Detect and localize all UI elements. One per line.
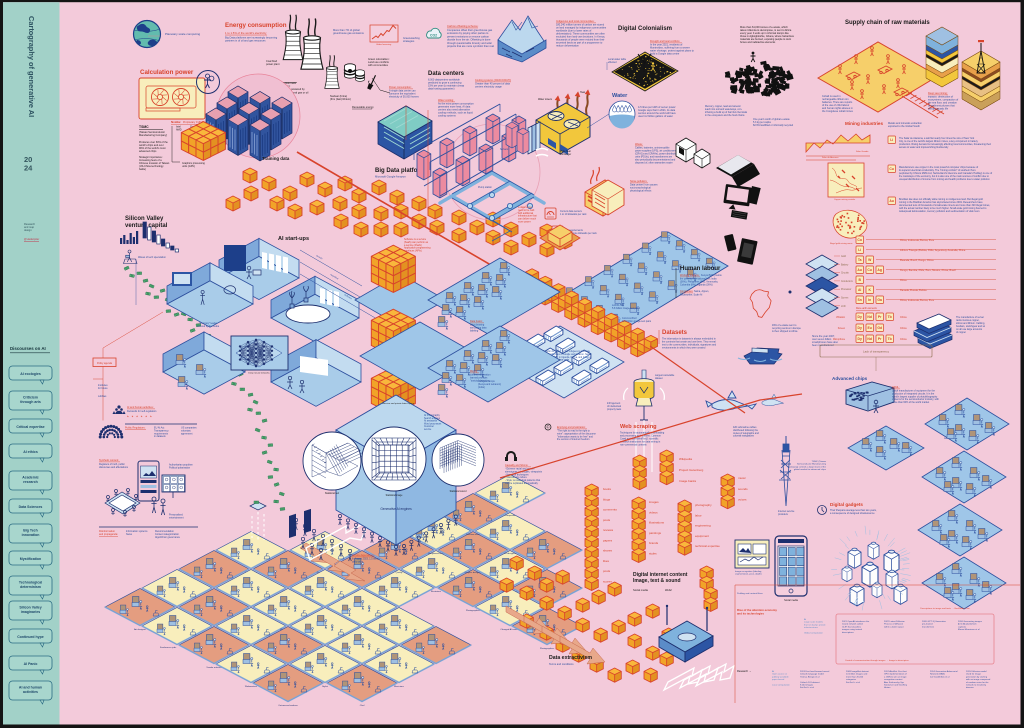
svg-text:Screen: Screen (841, 297, 849, 300)
svg-text:Silicon Valley: Silicon Valley (19, 606, 41, 610)
svg-text:Cartography of generative AI: Cartography of generative AI (27, 16, 36, 117)
svg-text:2021 OpenAI introduces the: 2021 OpenAI introduces the (842, 620, 870, 623)
svg-text:providers: providers (778, 513, 789, 516)
svg-text:Fei-Fei Li et al: Fei-Fei Li et al (800, 686, 814, 689)
svg-text:Co: Co (857, 238, 862, 242)
svg-text:AI Panic: AI Panic (24, 662, 38, 666)
svg-text:access to water and impoverish: access to water and impoverishing biodiv… (899, 146, 949, 149)
svg-text:[bl in AI planti] from: [bl in AI planti] from (958, 623, 977, 626)
svg-text:Calculation power: Calculation power (140, 69, 194, 76)
svg-text:videos: videos (649, 510, 658, 514)
svg-text:environments in which they wer: environments in which they were created (662, 347, 706, 350)
svg-text:posts: posts (603, 518, 611, 522)
svg-text:transformer): transformer) (922, 625, 934, 628)
svg-text:Profiling and content filters: Profiling and content filters (737, 592, 764, 595)
svg-text:Colombia (8%), Uganda (36%): Colombia (8%), Uganda (36%) (680, 284, 713, 287)
svg-text:Illustrators: Illustrators (431, 590, 442, 593)
svg-text:papers: papers (603, 538, 613, 542)
svg-text:China: China (900, 316, 907, 319)
svg-text:Nd: Nd (867, 315, 872, 319)
svg-text:electricity of 50,000 homes: electricity of 50,000 homes (389, 96, 419, 99)
svg-text:Sn: Sn (858, 298, 862, 302)
svg-text:Water: Water (612, 93, 628, 99)
svg-text:descriptions: descriptions (842, 631, 855, 634)
svg-text:Servers: Servers (500, 148, 509, 151)
svg-text:greenhouse gas emissions: greenhouse gas emissions (333, 31, 365, 35)
svg-text:China: China (900, 279, 907, 282)
svg-text:Web2: Web2 (665, 588, 672, 592)
svg-text:a CNN to win an image: a CNN to win an image (884, 675, 907, 678)
svg-text:innovation: innovation (22, 533, 40, 537)
svg-text:Water towers: Water towers (538, 98, 553, 101)
svg-text:Manufacturing Company): Manufacturing Company) (139, 134, 167, 137)
svg-text:Salar Grande: Salar Grande (856, 150, 869, 153)
svg-text:Data Sciences: Data Sciences (19, 505, 43, 509)
svg-text:units (GPU): units (GPU) (182, 165, 195, 168)
svg-text:in datasets: in datasets (154, 435, 166, 438)
svg-text:Al: Al (858, 288, 861, 292)
svg-text:global market for advanced chi: global market for advanced chips (794, 468, 827, 471)
svg-text:Process of diffusion: Process of diffusion (884, 623, 904, 626)
svg-text:with an image composed: with an image composed (966, 678, 991, 681)
svg-text:Tb: Tb (888, 337, 892, 341)
svg-text:widespread deforestation, merc: widespread deforestation, mercury pollut… (899, 210, 980, 213)
svg-text:of copper: of copper (956, 331, 966, 334)
svg-text:Chef: Chef (360, 705, 365, 707)
svg-text:Li: Li (890, 138, 893, 142)
svg-text:Global computation: Global computation (804, 632, 824, 635)
svg-text:*: * (150, 415, 152, 420)
svg-text:GPU implementation of: GPU implementation of (884, 673, 907, 676)
svg-text:9,144 images: 9,144 images (800, 685, 814, 687)
svg-text:Image, text & sound: Image, text & sound (633, 578, 681, 584)
svg-text:Congo, Zambia, Chile, Peru, Me: Congo, Zambia, Chile, Peru, Mexico, Chin… (900, 269, 956, 272)
svg-text:imaginaries: imaginaries (21, 610, 41, 614)
svg-text:Salar de Atacama: Salar de Atacama (822, 156, 839, 159)
svg-text:AI start-ups: AI start-ups (278, 236, 309, 242)
svg-text:colonial navigations: colonial navigations (733, 435, 755, 438)
svg-text:Digital gadgets: Digital gadgets (830, 502, 863, 507)
svg-text:property laws: property laws (607, 408, 622, 411)
svg-text:Dy: Dy (858, 315, 862, 319)
svg-text:Yoshua Bengio et al: Yoshua Bengio et al (800, 675, 820, 678)
svg-text:Mining industries: Mining industries (845, 121, 883, 126)
svg-text:Semiconductor Manufacturing: Semiconductor Manufacturing (797, 463, 827, 466)
svg-text:*: * (136, 415, 138, 420)
svg-text:2015 Diffusion model: 2015 Diffusion model (966, 671, 987, 673)
svg-text:China: China (900, 327, 907, 330)
svg-text:styles: styles (649, 551, 657, 555)
svg-text:Au: Au (889, 199, 894, 203)
svg-text:Algorithmic governance: Algorithmic governance (155, 536, 181, 539)
svg-text:network to iteratively: network to iteratively (966, 684, 987, 687)
svg-text:battle): battle) (139, 168, 146, 171)
svg-text:AI assistants: AI assistants (424, 420, 438, 423)
svg-text:exported to the Global South: exported to the Global South (888, 125, 920, 128)
svg-text:Data extractivism: Data extractivism (549, 655, 592, 661)
svg-text:Waves of tech speculation: Waves of tech speculation (138, 256, 166, 259)
svg-text:5.8 billion image-text pairs: 5.8 billion image-text pairs (612, 307, 641, 310)
svg-text:2013 First feed forward neura: 2013 First feed forward neural (800, 670, 830, 673)
svg-text:Screen: Screen (838, 327, 846, 330)
svg-text:projects that are more symboli: projects that are more symbolic than rea… (447, 44, 494, 48)
svg-text:Continued hype: Continued hype (17, 635, 43, 639)
svg-text:Network (GAN): Network (GAN) (930, 673, 945, 676)
svg-text:more than 60% of the world mar: more than 60% of the world market (892, 401, 930, 404)
svg-text:Mystification: Mystification (20, 557, 41, 561)
svg-text:Criticism: Criticism (23, 396, 38, 400)
svg-text:fumes and radioactive elements: fumes and radioactive elements (740, 41, 776, 44)
svg-text:Used for image: Used for image (966, 673, 982, 676)
svg-text:2016 Generating images: 2016 Generating images (958, 620, 983, 623)
svg-text:(India): (India) (478, 386, 485, 389)
svg-text:AI ecologies: AI ecologies (20, 372, 41, 376)
svg-text:Social media: Social media (633, 588, 648, 592)
svg-text:CLIP, that classifies: CLIP, that classifies (842, 625, 862, 628)
svg-text:design: design (24, 228, 32, 232)
svg-text:Elman Mansimov et al: Elman Mansimov et al (958, 628, 980, 631)
svg-text:Company) controls a large shar: Company) controls a large share of the (788, 465, 827, 468)
svg-text:Battery: Battery (841, 263, 849, 266)
svg-text:Discourses on AI: Discourses on AI (10, 346, 46, 351)
svg-text:China, Indonesia, Burma, Peru: China, Indonesia, Burma, Peru (900, 239, 935, 242)
svg-text:1 to 10 kilowatts per rack: 1 to 10 kilowatts per rack (560, 213, 587, 216)
svg-text:disposed of, often warranties: disposed of, often warranties expire (635, 162, 673, 165)
svg-text:voices: voices (738, 498, 747, 502)
svg-text:reduce deforestation: reduce deforestation (556, 45, 579, 48)
svg-text:Wikipedia: Wikipedia (679, 457, 692, 461)
svg-text:strategies: strategies (403, 39, 415, 43)
svg-text:Nvidia:: Nvidia: (171, 120, 181, 124)
svg-text:can be replicated automaticall: can be replicated automatically (505, 482, 539, 485)
svg-text:pre-trained: pre-trained (922, 623, 933, 626)
svg-text:Large scale models: Large scale models (804, 621, 824, 624)
svg-text:within a latent space: within a latent space (884, 625, 905, 628)
svg-text:Planetary scale computing: Planetary scale computing (165, 32, 201, 36)
svg-text:Circuits: Circuits (841, 272, 850, 275)
svg-text:Ag: Ag (877, 268, 882, 272)
svg-text:Critical expertise: Critical expertise (16, 425, 44, 429)
svg-text:CO2: CO2 (430, 34, 437, 38)
svg-text:is then shipped to Africa: is then shipped to Africa (772, 330, 798, 333)
svg-text:for future: for future (98, 387, 108, 390)
svg-text:centers electricity usage: centers electricity usage (475, 86, 502, 89)
svg-text:Digital Colonialism: Digital Colonialism (618, 26, 672, 32)
svg-text:Energy consumption: Energy consumption (225, 22, 287, 29)
svg-text:Li: Li (858, 248, 861, 252)
svg-text:Gd: Gd (877, 326, 882, 330)
svg-text:partners in of oil and gas res: partners in of oil and gas resources (225, 39, 266, 43)
svg-text:Image banks: Image banks (679, 479, 697, 483)
svg-text:Customer: Customer (424, 425, 434, 428)
svg-text:technical expertise: technical expertise (695, 544, 720, 548)
svg-text:24: 24 (24, 164, 33, 173)
svg-text:Outsourced workers: Outsourced workers (278, 704, 298, 707)
svg-text:*: * (141, 415, 143, 420)
svg-text:the Congolese cobalt mines: the Congolese cobalt mines (822, 110, 854, 113)
svg-text:labeling: labeling (470, 329, 479, 332)
svg-text:used 4.2 billion gallons of wa: used 4.2 billion gallons of water (638, 115, 673, 118)
svg-text:Largest cancelable: Largest cancelable (655, 374, 675, 377)
svg-text:and propaganda:: and propaganda: (99, 533, 118, 536)
svg-text:AI Photography: AI Photography (424, 414, 441, 417)
svg-text:Descriptions to image and text: Descriptions to image and texts → Goo/Na… (920, 607, 970, 610)
svg-text:discourses and affectations: discourses and affectations (99, 466, 129, 469)
svg-text:2012 AlexNet. First fast: 2012 AlexNet. First fast (884, 670, 907, 673)
svg-text:Illegal gold mining areas: Illegal gold mining areas (830, 242, 852, 245)
svg-text:Ta: Ta (858, 258, 862, 262)
svg-text:activities: activities (23, 690, 38, 694)
svg-text:2009 ImageNet dataset: 2009 ImageNet dataset (846, 670, 869, 673)
svg-text:in the ecosystem and the food: in the ecosystem and the food chains (705, 114, 745, 117)
svg-text:more than 20,000: more than 20,000 (846, 675, 864, 678)
svg-text:labor: labor (695, 513, 702, 517)
svg-text:Sutskever and Geoffrey: Sutskever and Geoffrey (884, 684, 908, 687)
svg-text:publicly available: publicly available (772, 676, 789, 678)
svg-text:agreement: agreement (181, 432, 193, 435)
svg-text:Search engines: Search engines (424, 417, 441, 420)
svg-text:physiological effects: physiological effects (630, 190, 652, 193)
svg-text:service: service (424, 428, 432, 431)
svg-text:Copper mining corridor: Copper mining corridor (834, 198, 855, 201)
svg-text:14 million images and: 14 million images and (846, 674, 868, 676)
svg-text:images using textual: images using textual (842, 628, 862, 631)
svg-text:Art designer: Art designer (134, 628, 146, 631)
svg-text:Lack of transparency: Lack of transparency (863, 350, 890, 354)
svg-text:Cu: Cu (889, 167, 894, 171)
svg-text:comments: comments (603, 508, 617, 512)
svg-text:shares: shares (603, 549, 613, 553)
svg-text:2014 Generative Adversarial: 2014 Generative Adversarial (930, 670, 958, 673)
svg-text:more power: more power (518, 221, 531, 224)
svg-text:music: music (738, 476, 746, 480)
svg-text:AI and human activities:: AI and human activities: (127, 406, 154, 409)
svg-text:*: * (132, 415, 134, 420)
svg-text:Caltech 101 dataset: Caltech 101 dataset (800, 681, 820, 684)
svg-text:Web scraping: Web scraping (620, 424, 657, 430)
svg-text:China, Indonesia, Burma, Peru: China, Indonesia, Burma, Peru (900, 299, 935, 302)
svg-text:advanced chips: advanced chips (139, 150, 157, 153)
svg-text:Clickworker, Scale AI: Clickworker, Scale AI (680, 294, 703, 297)
svg-text:with communities: with communities (368, 63, 389, 67)
svg-text:build a Google data centre: build a Google data centre (650, 53, 680, 56)
svg-text:Pump station: Pump station (478, 186, 493, 189)
svg-text:China: China (900, 338, 907, 341)
svg-text:daily visits: daily visits (352, 560, 364, 563)
svg-text:scores: scores (603, 579, 612, 583)
svg-text:Photographers: Photographers (540, 647, 555, 650)
svg-text:Control of communication throu: Control of communication through images … (845, 659, 910, 662)
svg-text:Hinton: Hinton (884, 686, 891, 689)
svg-text:unequal distribution of income: unequal distribution of income from mini… (899, 178, 990, 181)
svg-text:Microsoft Google Amazon: Microsoft Google Amazon (375, 175, 406, 179)
svg-text:Statistical image: Statistical image (386, 494, 403, 497)
svg-text:Nd: Nd (867, 337, 872, 341)
svg-text:disrupt aquatic life: disrupt aquatic life (928, 108, 949, 111)
svg-text:Massive and private latent spa: Massive and private latent space (382, 402, 415, 405)
svg-text:Project Gutenberg: Project Gutenberg (679, 468, 704, 472)
svg-text:(firm (fast) lithium): (firm (fast) lithium) (330, 97, 351, 101)
svg-text:Composite: Composite (505, 514, 516, 517)
svg-text:Terms and conditions: Terms and conditions (549, 662, 574, 666)
svg-text:cooling systems: cooling systems (438, 115, 457, 118)
svg-text:categories: categories (846, 678, 857, 681)
svg-text:Ian Goodfellow et al: Ian Goodfellow et al (930, 675, 950, 678)
svg-text:sounds: sounds (738, 487, 748, 491)
svg-text:neural network called: neural network called (842, 623, 863, 626)
svg-text:images: images (649, 500, 659, 504)
svg-text:Freelancers jobs: Freelancers jobs (160, 646, 177, 649)
svg-text:Alex Krizhevsky, Ilya: Alex Krizhevsky, Ilya (884, 681, 905, 684)
svg-text:Canada, Russia, Bolivia: Canada, Russia, Bolivia (900, 289, 927, 292)
svg-text:Fei-Fei Li et al: Fei-Fei Li et al (846, 681, 860, 684)
svg-text:dataset: dataset (655, 377, 663, 380)
svg-text:recognition contest: recognition contest (884, 678, 903, 681)
svg-text:*: * (145, 415, 147, 420)
svg-text:network language model: network language model (800, 673, 824, 676)
svg-text:Gold: Gold (841, 256, 847, 258)
svg-text:equipment: equipment (695, 534, 709, 538)
svg-text:determinism: determinism (20, 585, 41, 589)
svg-text:Social media: Social media (784, 599, 798, 602)
svg-text:Silicon Valley: Silicon Valley (125, 216, 164, 222)
svg-text:denoise: denoise (966, 687, 974, 689)
svg-text:2022 Latent Diffusion: 2022 Latent Diffusion (884, 620, 905, 623)
svg-text:Image recognition (labeling,: Image recognition (labeling, (735, 570, 762, 573)
svg-text:been manufactured: been manufactured (812, 344, 834, 347)
svg-text:that run &amp; private: that run &amp; private (804, 623, 826, 626)
svg-text:Statistical sound: Statistical sound (450, 490, 467, 493)
svg-text:Human labour: Human labour (680, 266, 721, 272)
svg-text:paper based: paper based (772, 678, 785, 681)
svg-text:Lobbies: Lobbies (98, 395, 107, 398)
svg-text:illustrations: illustrations (649, 521, 665, 525)
svg-text:through arts: through arts (20, 400, 41, 404)
svg-text:posts: posts (603, 569, 611, 573)
svg-text:Amazon AI, India; Syrian refug: Amazon AI, India; Syrian refugees to ann… (543, 350, 591, 353)
svg-text:Research →: Research → (737, 669, 752, 673)
svg-text:Processor: Processor (841, 288, 852, 291)
svg-text:paintings: paintings (649, 531, 662, 535)
svg-text:captions: captions (958, 625, 967, 628)
svg-text:AI and human: AI and human (19, 686, 42, 690)
svg-text:Synthetic content:: Synthetic content: (99, 459, 119, 462)
svg-text:Ga: Ga (877, 298, 882, 302)
svg-text:Musicians: Musicians (394, 686, 405, 688)
svg-text:the version of internet freedo: the version of internet freedom (557, 438, 589, 441)
svg-text:Public Regulators:: Public Regulators: (125, 427, 146, 430)
svg-text:a consequence of designed obso: a consequence of designed obsolescence (830, 512, 875, 515)
svg-text:Dy: Dy (858, 337, 862, 341)
svg-text:Supply chain of raw materials: Supply chain of raw materials (845, 20, 930, 26)
svg-text:AMD: AMD (176, 129, 182, 132)
svg-text:Demands for self-regulation: Demands for self-regulation (127, 410, 157, 413)
svg-text:entertainment: entertainment (169, 516, 184, 519)
svg-text:Open source or: Open source or (772, 673, 787, 676)
svg-text:Rwanda, Brazil, Congo, China: Rwanda, Brazil, Congo, China (900, 259, 934, 262)
svg-text:segmentation, pose, depth): segmentation, pose, depth) (735, 573, 762, 576)
svg-text:Renewable energy: Renewable energy (352, 105, 374, 109)
svg-text:Heat: Heat (580, 91, 585, 94)
svg-text:reviews: reviews (603, 528, 614, 532)
svg-text:likes: likes (603, 559, 610, 563)
svg-text:Policy agenda: Policy agenda (97, 362, 113, 365)
svg-text:Word processors: Word processors (424, 422, 442, 425)
svg-text:Conductors: Conductors (841, 280, 854, 283)
svg-text:AI ethics: AI ethics (23, 450, 38, 454)
svg-text:@vladanjoler: @vladanjoler (24, 237, 39, 241)
svg-text:Advanced chips: Advanced chips (832, 376, 868, 381)
svg-text:exchanger: exchanger (560, 153, 571, 156)
svg-text:LCD: LCD (841, 306, 846, 308)
svg-text:Datasets: Datasets (662, 330, 688, 336)
svg-text:Stylist: Stylist (322, 685, 328, 688)
svg-text:research: research (23, 480, 38, 484)
svg-text:brands: brands (649, 541, 659, 545)
svg-text:Tb: Tb (888, 315, 892, 319)
svg-text:Vibration: Vibration (836, 316, 846, 319)
svg-text:data hosting guarantee): data hosting guarantee) (428, 88, 455, 91)
svg-text:Carbon offsetting scheme:: Carbon offsetting scheme: (447, 24, 479, 28)
svg-text:TSMC (Taiwan: TSMC (Taiwan (812, 461, 827, 463)
svg-text:generation by starting: generation by starting (966, 675, 988, 678)
svg-text:effected: effected (608, 61, 617, 64)
svg-text:Dy: Dy (858, 326, 862, 330)
svg-text:Eu: Eu (868, 326, 872, 330)
svg-text:non-commercial contexts: non-commercial contexts (620, 444, 647, 447)
svg-text:Au: Au (857, 268, 862, 272)
svg-text:82.6% landfilled or informally: 82.6% landfilled or informally recycled (753, 124, 794, 127)
svg-text:In: In (868, 298, 871, 302)
svg-text:UI designer: UI designer (504, 552, 515, 555)
svg-text:*: * (127, 415, 129, 420)
svg-text:Lithium Triangle (Bolivia, Chi: Lithium Triangle (Bolivia, Chile, Argent… (900, 249, 966, 252)
svg-text:Training data: Training data (262, 156, 290, 161)
svg-text:Global warming: Global warming (376, 43, 392, 46)
svg-text:Academic: Academic (22, 476, 39, 480)
svg-text:1 to 1.5% of the world's elect: 1 to 1.5% of the world's electricity (225, 31, 267, 35)
svg-text:Big Tech: Big Tech (23, 529, 38, 533)
svg-text:blogs: blogs (603, 497, 611, 501)
svg-text:Political polarization: Political polarization (169, 466, 191, 469)
svg-text:Cu: Cu (867, 268, 872, 272)
svg-text:and its technologies: and its technologies (737, 611, 764, 615)
svg-text:Statistical text: Statistical text (325, 492, 340, 495)
svg-text:TSMC: TSMC (139, 125, 149, 129)
svg-text:"Visionary" leader: "Visionary" leader (199, 322, 217, 325)
svg-text:covered by the media: covered by the media (197, 325, 220, 328)
svg-text:News: News (126, 533, 133, 536)
svg-text:Generative AI engines: Generative AI engines (380, 507, 412, 511)
svg-text:Rare earth elements: Rare earth elements (856, 307, 878, 310)
svg-text:Deep neural networks: Deep neural networks (248, 372, 270, 375)
svg-text:infrastructures: infrastructures (804, 626, 819, 629)
svg-text:books: books (603, 487, 612, 491)
svg-text:Data centers: Data centers (428, 71, 465, 77)
svg-text:Quality: Quality (396, 571, 404, 574)
svg-text:Local computation: Local computation (772, 684, 791, 687)
svg-text:power plant: power plant (266, 62, 280, 66)
svg-text:engineering: engineering (695, 524, 711, 528)
svg-text:Technological: Technological (19, 581, 42, 585)
svg-text:of random noise for the: of random noise for the (966, 681, 989, 684)
svg-text:12.8 billion image-text pairs: 12.8 billion image-text pairs (622, 320, 652, 323)
svg-text:2020 GPT-3 (Generative: 2020 GPT-3 (Generative (922, 620, 947, 623)
svg-text:photography: photography (695, 503, 712, 507)
